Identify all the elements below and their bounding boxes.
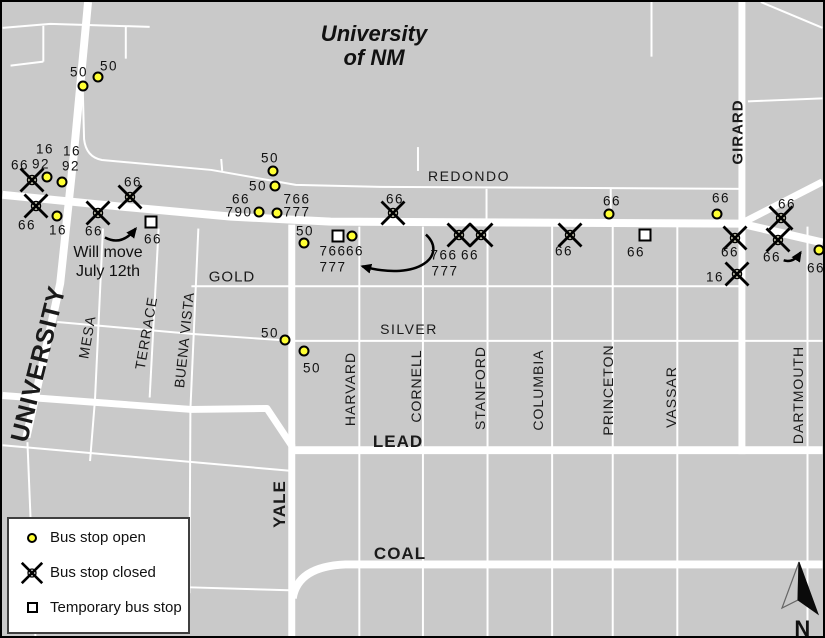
street-label-gold: GOLD bbox=[209, 269, 256, 286]
bus-stop-route-label: 66 bbox=[627, 245, 645, 260]
bus-stop-map: University of NM Will move July 12th UNI… bbox=[0, 0, 825, 638]
bus-stop-closed-icon bbox=[19, 561, 45, 585]
street-label-silver: SILVER bbox=[380, 321, 438, 337]
north-arrow: N bbox=[772, 558, 825, 638]
bus-stop-route-label: 790 bbox=[225, 205, 252, 220]
street-label-vassar: VASSAR bbox=[663, 366, 679, 428]
bus-stop-route-label: 66 bbox=[18, 218, 36, 233]
map-title: University of NM bbox=[321, 22, 427, 70]
street-label-yale: YALE bbox=[270, 480, 290, 528]
legend-row-temporary: Temporary bus stop bbox=[19, 591, 188, 624]
bus-stop-route-label: 92 bbox=[32, 157, 50, 172]
bus-stop-closed-marker bbox=[85, 200, 112, 227]
bus-stop-route-label: 766 bbox=[319, 244, 346, 259]
bus-stop-route-label: 66 bbox=[144, 232, 162, 247]
bus-stop-open-marker bbox=[57, 177, 68, 188]
temporary-bus-stop-marker bbox=[639, 229, 652, 242]
bus-stop-route-label: 16 bbox=[36, 142, 54, 157]
bus-stop-route-label: 66 bbox=[721, 245, 739, 260]
street-label-lead: LEAD bbox=[373, 432, 423, 452]
bus-stop-route-label: 66 bbox=[124, 175, 142, 190]
bus-stop-open-marker bbox=[299, 238, 310, 249]
map-title-line2: of NM bbox=[321, 46, 427, 70]
bus-stop-route-label: 92 bbox=[62, 159, 80, 174]
map-title-line1: University bbox=[321, 22, 427, 46]
bus-stop-route-label: 16 bbox=[706, 270, 724, 285]
bus-stop-route-label: 66 bbox=[555, 244, 573, 259]
bus-stop-route-label: 66 bbox=[386, 192, 404, 207]
bus-stop-open-marker bbox=[814, 245, 825, 256]
bus-stop-route-label: 50 bbox=[249, 179, 267, 194]
street-label-princeton: PRINCETON bbox=[600, 344, 616, 435]
bus-stop-open-marker bbox=[299, 346, 310, 357]
bus-stop-route-label: 50 bbox=[100, 59, 118, 74]
bus-stop-route-label: 66 bbox=[346, 244, 364, 259]
bus-stop-route-label: 16 bbox=[49, 223, 67, 238]
bus-stop-route-label: 66 bbox=[461, 248, 479, 263]
bus-stop-open-marker bbox=[272, 208, 283, 219]
bus-stop-route-label: 66 bbox=[778, 197, 796, 212]
bus-stop-route-label: 66 bbox=[712, 191, 730, 206]
note-line1: Will move bbox=[73, 243, 142, 262]
temporary-bus-stop-marker bbox=[332, 230, 345, 243]
bus-stop-open-marker bbox=[268, 166, 279, 177]
bus-stop-route-label: 50 bbox=[303, 361, 321, 376]
north-label: N bbox=[794, 616, 810, 638]
legend: Bus stop open Bus stop closed Temporary … bbox=[7, 517, 190, 634]
bus-stop-open-marker bbox=[270, 181, 281, 192]
bus-stop-route-label: 777 bbox=[431, 264, 458, 279]
bus-stop-open-marker bbox=[78, 81, 89, 92]
street-label-columbia: COLUMBIA bbox=[530, 349, 546, 430]
temporary-bus-stop-marker bbox=[145, 216, 158, 229]
bus-stop-open-marker bbox=[347, 231, 358, 242]
street-label-stanford: STANFORD bbox=[472, 346, 488, 430]
street-label-dartmouth: DARTMOUTH bbox=[790, 346, 806, 444]
bus-stop-route-label: 766 bbox=[430, 248, 457, 263]
bus-stop-route-label: 50 bbox=[261, 326, 279, 341]
will-move-note: Will move July 12th bbox=[73, 243, 142, 281]
street-label-harvard: HARVARD bbox=[342, 352, 358, 426]
bus-stop-route-label: 66 bbox=[85, 224, 103, 239]
legend-label-open: Bus stop open bbox=[50, 529, 146, 546]
bus-stop-open-marker bbox=[254, 207, 265, 218]
bus-stop-route-label: 66 bbox=[603, 194, 621, 209]
bus-stop-open-marker bbox=[280, 335, 291, 346]
legend-label-temporary: Temporary bus stop bbox=[50, 599, 182, 616]
bus-stop-route-label: 66 bbox=[807, 261, 825, 276]
street-label-coal: COAL bbox=[374, 544, 426, 564]
bus-stop-open-marker bbox=[604, 209, 615, 220]
street-label-cornell: CORNELL bbox=[408, 349, 424, 422]
bus-stop-route-label: 16 bbox=[63, 144, 81, 159]
temporary-bus-stop-icon bbox=[19, 602, 45, 613]
bus-stop-route-label: 777 bbox=[319, 260, 346, 275]
street-label-girard: GIRARD bbox=[730, 99, 747, 164]
street-label-redondo: REDONDO bbox=[428, 168, 510, 184]
note-line2: July 12th bbox=[73, 262, 142, 281]
bus-stop-open-icon bbox=[19, 533, 45, 543]
bus-stop-route-label: 50 bbox=[261, 151, 279, 166]
bus-stop-route-label: 50 bbox=[70, 65, 88, 80]
bus-stop-open-marker bbox=[712, 209, 723, 220]
bus-stop-closed-marker bbox=[468, 222, 495, 249]
move-arrow-to-temp-stop-west bbox=[105, 229, 136, 241]
bus-stop-route-label: 777 bbox=[283, 205, 310, 220]
legend-row-open: Bus stop open bbox=[19, 521, 188, 554]
north-arrow-icon bbox=[772, 558, 825, 618]
move-arrow-to-open-stop-east bbox=[784, 252, 801, 261]
legend-label-closed: Bus stop closed bbox=[50, 564, 156, 581]
bus-stop-open-marker bbox=[52, 211, 63, 222]
bus-stop-route-label: 50 bbox=[296, 224, 314, 239]
bus-stop-closed-marker bbox=[724, 261, 751, 288]
bus-stop-route-label: 66 bbox=[763, 250, 781, 265]
legend-row-closed: Bus stop closed bbox=[19, 556, 188, 589]
bus-stop-route-label: 66 bbox=[11, 158, 29, 173]
bus-stop-closed-marker bbox=[23, 193, 50, 220]
